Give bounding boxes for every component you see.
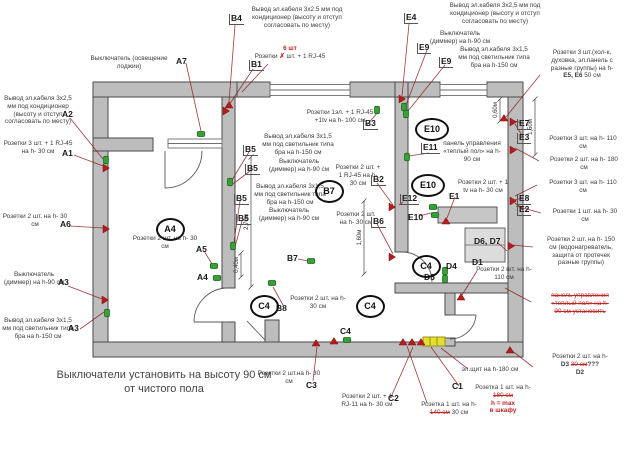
label-a4: A4	[197, 273, 208, 282]
outlet-c4	[343, 338, 351, 343]
label-e7: E7	[517, 119, 531, 130]
e9-cable-note: Вывод эл.кабеля 3х1,5мм под светильник т…	[450, 46, 538, 69]
wall-1-stub	[222, 322, 235, 342]
wall-entry-pier	[265, 320, 279, 342]
wall-left	[93, 97, 108, 342]
socket-d1	[457, 294, 465, 301]
room1-door	[194, 288, 228, 322]
label-a6: A6	[60, 220, 71, 229]
label-b5: B5	[236, 214, 251, 225]
leader-line	[298, 259, 308, 261]
e9-switch-note: Выключатель(диммер) на h-90 см	[420, 30, 500, 46]
label-e3: E3	[517, 133, 531, 144]
label-b1: B1	[249, 60, 264, 71]
outlet-b8	[268, 281, 276, 286]
label-b5: B5	[234, 194, 249, 205]
d6d7-sockets-note: Розетки 2 шт. на h- 150см (водонагревате…	[534, 236, 628, 267]
wall-kitchen-bottom	[395, 283, 508, 293]
label-a3: A3	[68, 324, 79, 333]
label-e2: E2	[517, 205, 531, 216]
outlet-e10-1	[429, 205, 437, 210]
outlet-b5-1	[228, 178, 233, 186]
switch-loggia-a7	[197, 132, 205, 137]
entry-door-leaf	[247, 321, 265, 340]
sockets-180-note: Розетки 2 шт. на h- 180см	[540, 156, 628, 172]
outlet-a2	[104, 156, 109, 164]
b4-cable-note: Вывод эл.кабеля 3х2.5 мм подкондиционер …	[242, 6, 352, 29]
a7-switch-note: Выключатель (освещение лоджии)	[78, 55, 180, 71]
outlet-a5	[210, 264, 218, 269]
b1-qty-note: 6 штРозетки ✗ шт. + 1 RJ-45	[250, 45, 330, 61]
label-c4: C4	[340, 327, 351, 336]
heated-floor-cancelled-note: панель управления«теплый пол» на h-90 см…	[532, 292, 628, 315]
d3d2-sockets-note: Розетки 2 шт. на h-D3 30 см???D2	[534, 353, 626, 376]
d1-sockets-note: Розетки 2 шт. на h-110 см	[476, 266, 532, 282]
a6-sockets-note: Розетки 2 шт. на h- 30см	[2, 213, 68, 229]
sockets-30-note: Розетки 1 шт. на h- 30см	[542, 208, 628, 224]
label-c3: C3	[306, 381, 317, 390]
label-b6: B6	[371, 217, 386, 228]
domofon-socket-note: Розетка 1 шт. на h-140 см 30 см	[404, 401, 494, 417]
outlet-e10-2	[431, 213, 439, 218]
label-e12: E12	[400, 194, 419, 205]
label-b3: B3	[363, 119, 378, 130]
label-e9: E9	[439, 57, 453, 68]
outlet-e9-2	[404, 110, 409, 118]
label-a5: A5	[196, 245, 207, 254]
label-a2: A2	[62, 110, 73, 119]
wall-top-mid-b	[350, 82, 395, 97]
outlet-e11	[405, 153, 410, 161]
e5e6-sockets-note: Розетки 3 шт.(хол-к,духовка, эл.панель с…	[536, 49, 628, 80]
socket-b6	[389, 253, 396, 261]
label-a1: A1	[62, 149, 73, 158]
label-b5: B5	[243, 145, 258, 156]
wall-bottom	[93, 342, 523, 357]
socket-c4	[330, 338, 338, 345]
circled-label-c4: C4	[412, 255, 441, 278]
circled-label-c4: C4	[356, 295, 385, 318]
label-a3: A3	[58, 278, 69, 287]
outlet-b7	[307, 259, 315, 264]
label-e4: E4	[404, 13, 418, 24]
wall-top-right-a	[408, 82, 440, 97]
b5-cable-note-1: Вывод эл.кабеля 3х1,5мм под светильник т…	[258, 133, 338, 156]
a3-cable-note: Вывод эл.кабеля 3х1,5мм под светильник т…	[2, 317, 74, 340]
e4-cable-note: Вывод эл.кабеля 3х2,5 мм подкондиционер …	[420, 2, 570, 25]
wall-2	[395, 97, 408, 252]
e11-panel-note: панель управления«теплый пол» на h-90 см	[440, 140, 504, 163]
footer-line-2: от чистого пола	[28, 383, 300, 397]
label-b7: B7	[287, 254, 298, 263]
label-b5: B5	[245, 164, 260, 175]
electrical-panel-box	[423, 337, 445, 346]
a3-switch-note: Выключатель(диммер) на h-90 см	[2, 271, 66, 287]
e7e3-sockets-note: Розетки 3 шт. на h- 110см	[538, 135, 628, 151]
outlet-e9-1	[402, 103, 407, 111]
circled-label-b7: B7	[315, 180, 344, 203]
footer-note: Выключатели установить на высоту 90 см о…	[28, 369, 300, 396]
b8-sockets-note: Розетки 2 шт. на h-30 см	[286, 295, 350, 311]
circled-label-e10: E10	[411, 174, 445, 197]
label-a7: A7	[176, 57, 187, 66]
leader-line	[377, 224, 393, 254]
svg-text:0,40м: 0,40м	[234, 257, 240, 273]
label-c1: C1	[452, 382, 463, 391]
label-b4: B4	[229, 14, 244, 25]
wall-top-wall2-head	[395, 82, 408, 97]
label-c2: C2	[388, 394, 399, 403]
sockets-110b-note: Розетки 3 шт. на h- 110см	[538, 179, 628, 195]
b5-switch-note-2: Выключатель(диммер) на h-90 см	[252, 207, 326, 223]
label-e9: E9	[417, 43, 431, 54]
balcony-door	[165, 151, 202, 188]
panel-board-note: эл.щит на h-180 см	[446, 366, 534, 374]
circled-label-e10: E10	[415, 118, 449, 141]
circled-label-c4: C4	[250, 295, 279, 318]
label-e10: E10	[408, 213, 423, 222]
label-d6d7: D6, D7	[474, 237, 500, 246]
wall-top-loggia	[93, 82, 237, 97]
svg-text:0,60м: 0,60м	[493, 102, 499, 118]
wall-top-mid-a	[237, 82, 270, 97]
wall-bath-left-a	[445, 293, 455, 315]
bath-door	[450, 315, 476, 339]
floor-plan-canvas: 0,60м1,50м1,60м2,70м0,40м Выключатель (о…	[0, 0, 630, 449]
outlet-a3-bra	[105, 309, 110, 317]
outlet-d5	[443, 275, 448, 283]
outlet-b5-2	[231, 242, 236, 250]
label-e1: E1	[449, 192, 459, 201]
wall-loggia-divider	[93, 138, 153, 151]
footer-line-1: Выключатели установить на высоту 90 см	[28, 369, 300, 383]
svg-text:1,60м: 1,60м	[357, 230, 363, 246]
outlet-a4	[213, 276, 221, 281]
label-b2: B2	[371, 175, 386, 186]
e1-sockets-note: Розетки 2 шт. + 1tv на h- 30 см	[452, 179, 514, 195]
label-d4: D4	[446, 262, 457, 271]
label-d1: D1	[472, 258, 483, 267]
wall-top-right-b	[487, 82, 523, 97]
label-e11: E11	[421, 143, 440, 154]
b5-switch-note-1: Выключатель(диммер) на h-90 см	[262, 158, 336, 174]
circled-label-a4: A4	[156, 218, 185, 241]
